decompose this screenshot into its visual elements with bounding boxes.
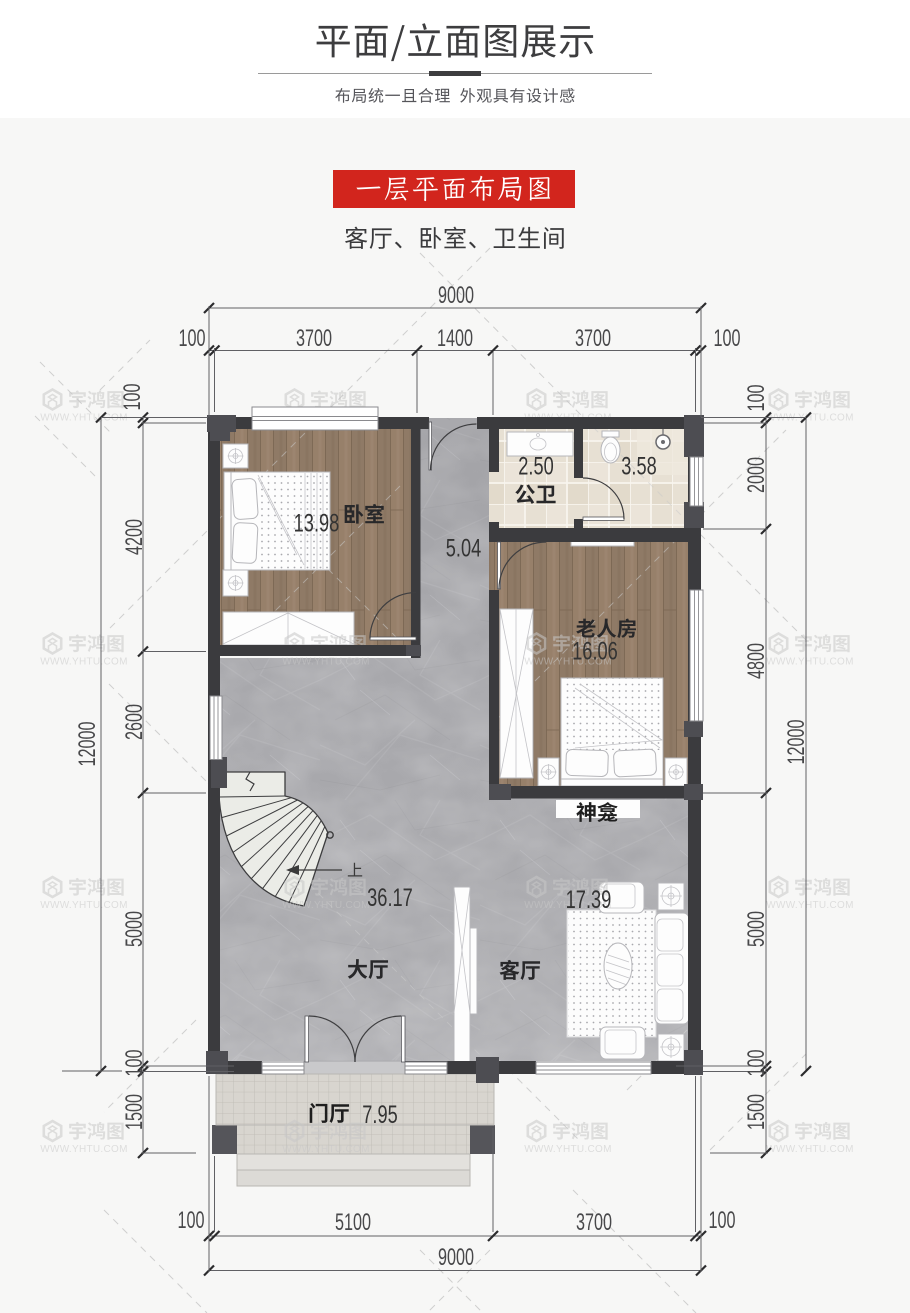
svg-text:36.17: 36.17: [367, 884, 413, 912]
svg-text:WWW.YHTU.COM: WWW.YHTU.COM: [282, 657, 369, 668]
svg-text:WWW.YHTU.COM: WWW.YHTU.COM: [766, 657, 853, 668]
svg-text:100: 100: [714, 325, 741, 352]
svg-text:100: 100: [119, 384, 146, 411]
svg-text:1500: 1500: [743, 1094, 770, 1130]
svg-text:WWW.YHTU.COM: WWW.YHTU.COM: [524, 1144, 611, 1155]
svg-text:100: 100: [743, 1050, 770, 1077]
svg-text:5000: 5000: [743, 911, 770, 947]
svg-text:3700: 3700: [576, 1209, 612, 1236]
svg-text:4200: 4200: [121, 519, 148, 555]
svg-text:1400: 1400: [437, 325, 473, 352]
svg-text:100: 100: [743, 385, 770, 412]
svg-text:13.98: 13.98: [294, 510, 340, 538]
svg-text:3700: 3700: [575, 325, 611, 352]
svg-text:3700: 3700: [296, 325, 332, 352]
svg-text:4800: 4800: [743, 643, 770, 679]
svg-text:100: 100: [179, 325, 206, 352]
svg-text:5.04: 5.04: [446, 534, 481, 562]
svg-text:9000: 9000: [438, 1244, 474, 1271]
svg-text:100: 100: [121, 1050, 148, 1077]
svg-text:7.95: 7.95: [362, 1101, 397, 1129]
svg-text:100: 100: [178, 1207, 205, 1234]
svg-text:17.39: 17.39: [566, 886, 612, 914]
svg-text:2600: 2600: [121, 704, 148, 740]
svg-text:3.58: 3.58: [621, 452, 656, 480]
svg-text:WWW.YHTU.COM: WWW.YHTU.COM: [40, 657, 127, 668]
svg-text:9000: 9000: [438, 282, 474, 309]
svg-text:WWW.YHTU.COM: WWW.YHTU.COM: [766, 900, 853, 911]
svg-text:2.50: 2.50: [518, 452, 553, 480]
svg-text:5000: 5000: [121, 911, 148, 947]
svg-text:WWW.YHTU.COM: WWW.YHTU.COM: [40, 1144, 127, 1155]
svg-text:1500: 1500: [121, 1094, 148, 1130]
svg-text:100: 100: [709, 1207, 736, 1234]
svg-text:2000: 2000: [743, 457, 770, 493]
svg-text:WWW.YHTU.COM: WWW.YHTU.COM: [282, 1144, 369, 1155]
svg-text:WWW.YHTU.COM: WWW.YHTU.COM: [282, 900, 369, 911]
svg-text:12000: 12000: [783, 720, 810, 765]
svg-text:16.06: 16.06: [572, 637, 618, 665]
svg-text:12000: 12000: [74, 722, 101, 767]
svg-text:WWW.YHTU.COM: WWW.YHTU.COM: [766, 1144, 853, 1155]
svg-text:WWW.YHTU.COM: WWW.YHTU.COM: [40, 900, 127, 911]
svg-text:5100: 5100: [335, 1209, 371, 1236]
